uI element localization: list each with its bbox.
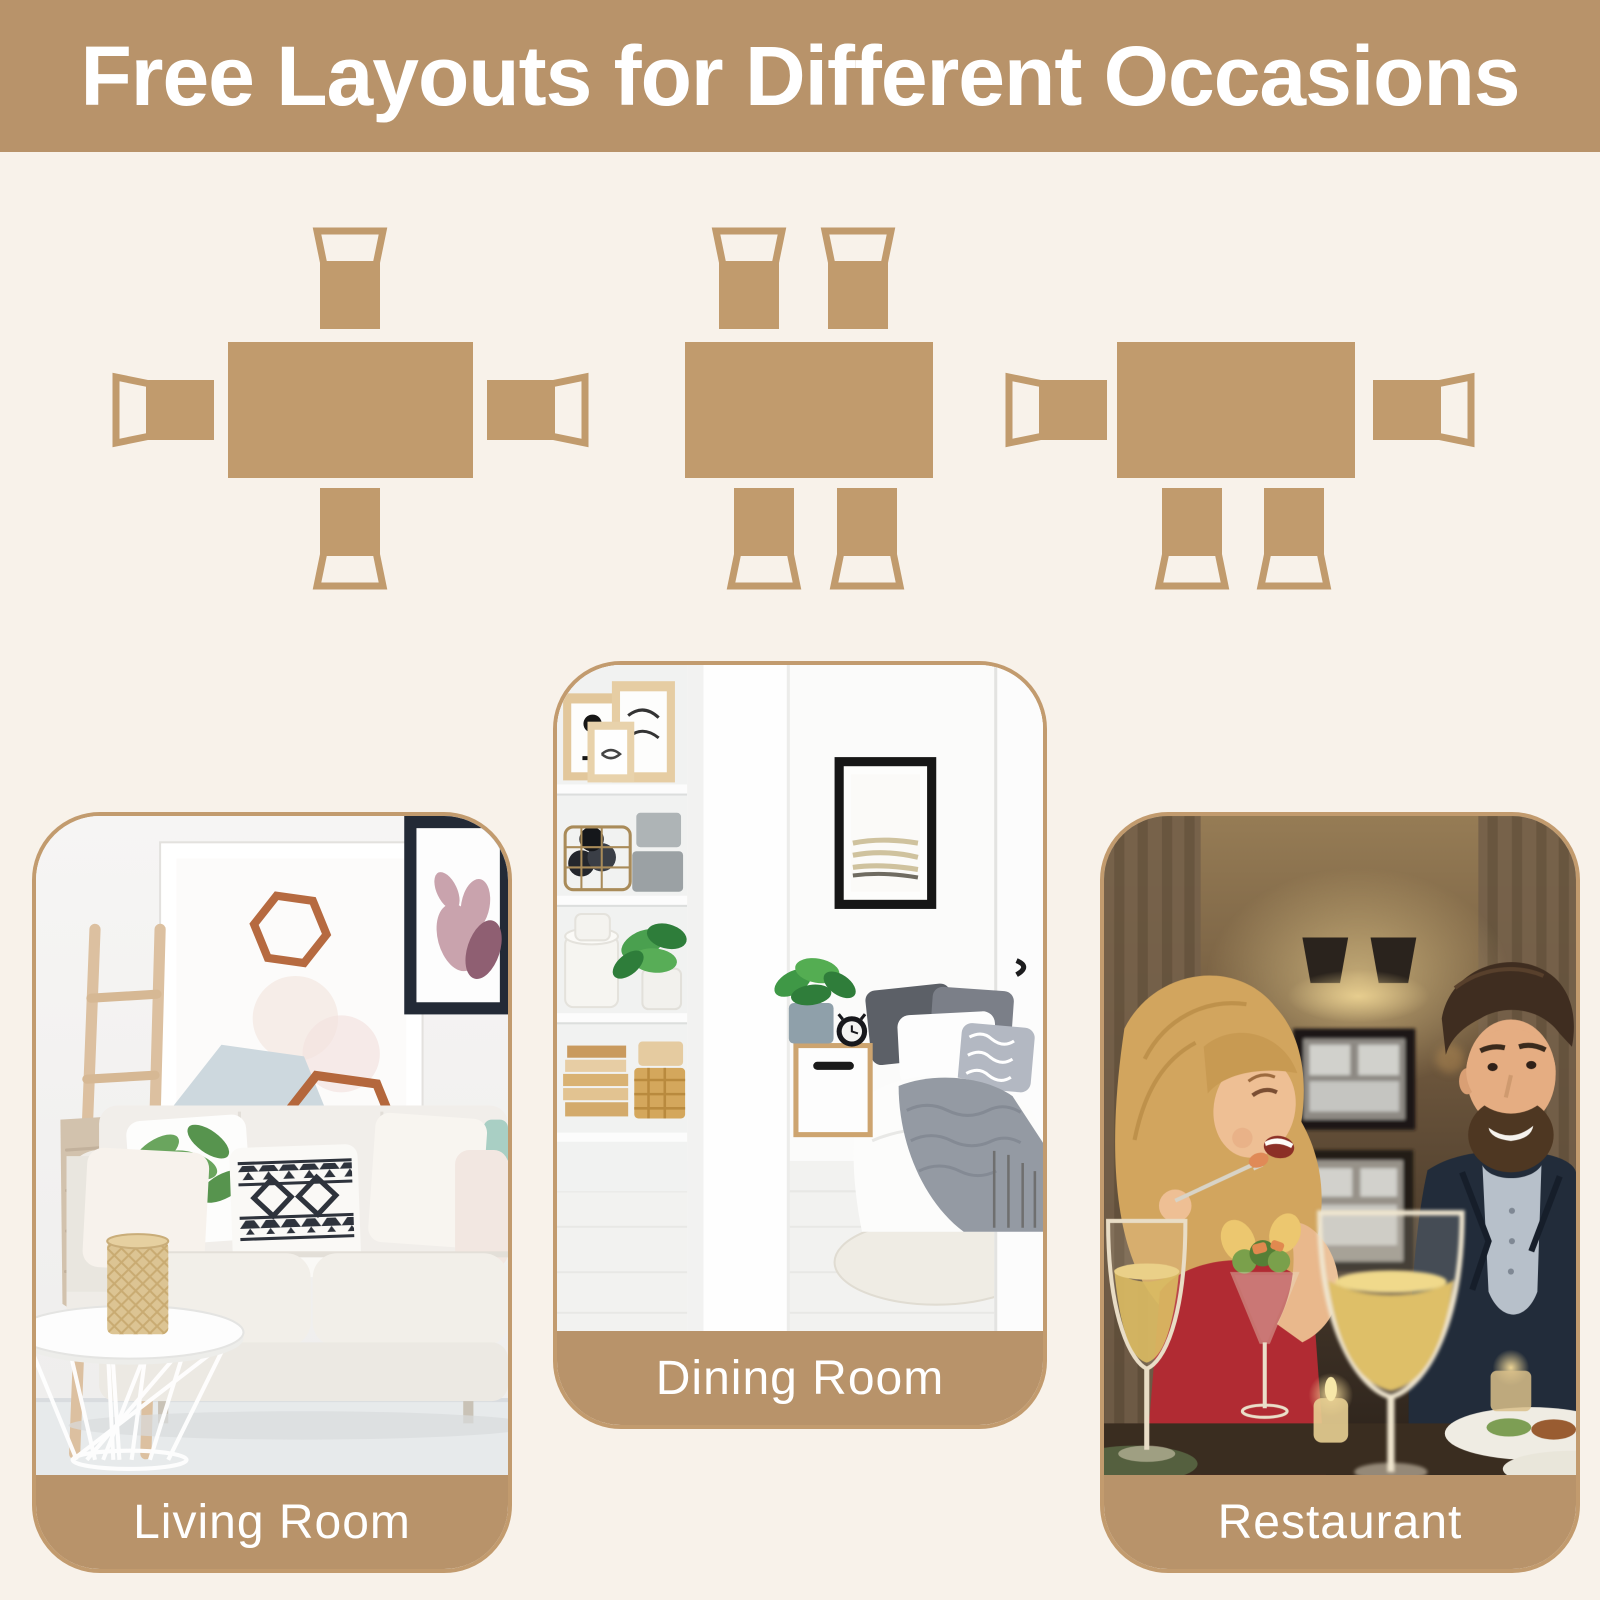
living-room-photo: [36, 816, 508, 1475]
restaurant-label-bar: Restaurant: [1104, 1475, 1576, 1569]
infographic-canvas: Free Layouts for Different Occasions: [0, 0, 1600, 1600]
chair-bottom-left-icon: [1159, 488, 1225, 586]
chair-left-icon: [116, 377, 214, 443]
wall-divider: [687, 665, 790, 1331]
chair-bottom-right-icon: [834, 488, 900, 586]
dining-room-illustration: [557, 665, 1043, 1331]
table-with-one-chair-on-each-side-icon: [95, 222, 595, 594]
dining-room-card: Dining Room: [553, 661, 1047, 1429]
table-top: [685, 342, 933, 478]
living-room-illustration: [36, 816, 508, 1475]
chair-bottom-right-icon: [1261, 488, 1327, 586]
header-banner: Free Layouts for Different Occasions: [0, 0, 1600, 152]
chair-right-icon: [1373, 377, 1471, 443]
dining-room-label-bar: Dining Room: [557, 1331, 1043, 1425]
alarm-clock: [837, 1014, 868, 1046]
picture-frames: [563, 681, 675, 782]
chair-top-left-icon: [716, 231, 782, 329]
living-room-card: Living Room: [32, 812, 512, 1573]
chair-bottom-left-icon: [731, 488, 797, 586]
table-top: [228, 342, 473, 478]
layout-diagram-3: [990, 222, 1490, 602]
restaurant-label: Restaurant: [1218, 1495, 1463, 1550]
table-top: [1117, 342, 1355, 478]
table-with-two-chairs-top-and-two-bottom-icon: [640, 222, 940, 602]
blush-pillow: [455, 1150, 508, 1267]
chair-left-icon: [1009, 377, 1107, 443]
chair-top-icon: [317, 231, 383, 329]
restaurant-illustration: [1104, 816, 1576, 1475]
dining-room-label: Dining Room: [656, 1351, 944, 1406]
bedroom-wall-art: [835, 757, 937, 909]
gold-candle-holder: [107, 1234, 168, 1334]
chair-bottom-icon: [317, 488, 383, 586]
seat-cushion: [313, 1253, 508, 1346]
books-and-woven-box: [563, 1042, 685, 1119]
page-title: Free Layouts for Different Occasions: [80, 28, 1519, 125]
shelf-unit: [557, 665, 690, 1191]
chair-top-right-icon: [825, 231, 891, 329]
living-room-label-bar: Living Room: [36, 1475, 508, 1569]
restaurant-card: Restaurant: [1100, 812, 1580, 1573]
cactus-art-frame: [404, 816, 508, 1014]
layout-diagram-2: [640, 222, 940, 602]
chair-right-icon: [487, 377, 585, 443]
table-with-left-right-and-two-bottom-chairs-icon: [990, 222, 1490, 602]
living-room-label: Living Room: [133, 1495, 411, 1550]
layout-diagram-1: [95, 222, 595, 594]
dining-room-photo: [557, 665, 1043, 1331]
restaurant-photo: [1104, 816, 1576, 1475]
